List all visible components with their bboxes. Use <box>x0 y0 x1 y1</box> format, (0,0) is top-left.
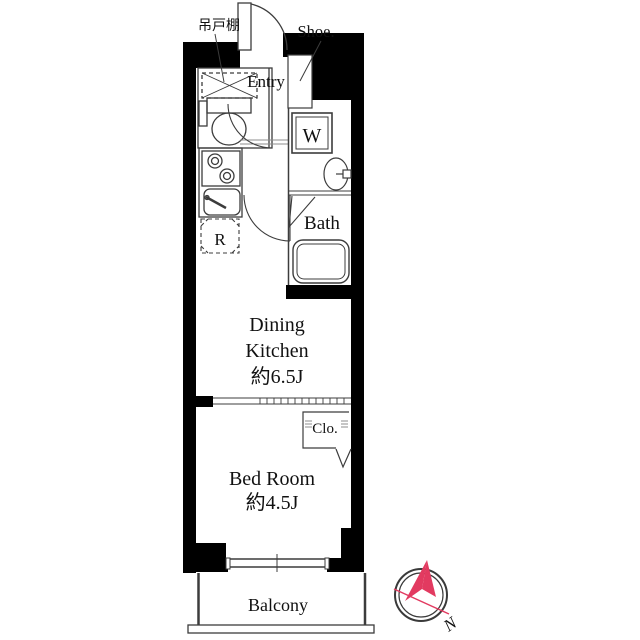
compass-icon: N <box>394 560 462 636</box>
refrigerator-label: R <box>214 230 226 249</box>
window <box>226 554 329 572</box>
dining-kitchen-label-line2: Kitchen <box>245 340 308 362</box>
washer-label: W <box>303 125 322 147</box>
bath-room <box>289 196 349 283</box>
hanging-cupboard-label: 吊戸棚 <box>198 18 240 34</box>
dining-kitchen-size: 約6.5J <box>251 365 304 388</box>
dining-kitchen-label-line1: Dining <box>249 314 305 336</box>
stove-icon <box>202 151 240 186</box>
door-arcs <box>228 104 290 241</box>
bed-room-size: 約4.5J <box>246 491 299 514</box>
compass-north-label: N <box>439 612 461 636</box>
entrance-door <box>238 3 287 50</box>
closet-label: Clo. <box>312 421 337 437</box>
kitchen-sink-icon <box>204 189 240 215</box>
bed-room-label: Bed Room <box>229 468 316 490</box>
closet-door <box>336 449 351 467</box>
kitchen-counter <box>199 148 242 217</box>
bath-label: Bath <box>304 213 340 234</box>
washbasin-icon <box>324 158 351 190</box>
shoe-label: Shoe. <box>297 22 334 41</box>
balcony-label: Balcony <box>248 595 308 615</box>
bathtub-icon <box>293 240 349 283</box>
shoe-cabinet-icon <box>288 55 312 108</box>
floor-plan-page: N 吊戸棚 Shoe. Entry W Bath R Dining Kitche… <box>0 0 640 640</box>
floor-plan: N 吊戸棚 Shoe. Entry W Bath R Dining Kitche… <box>0 0 640 640</box>
sliding-door <box>213 398 351 404</box>
entry-label: Entry <box>247 72 285 91</box>
